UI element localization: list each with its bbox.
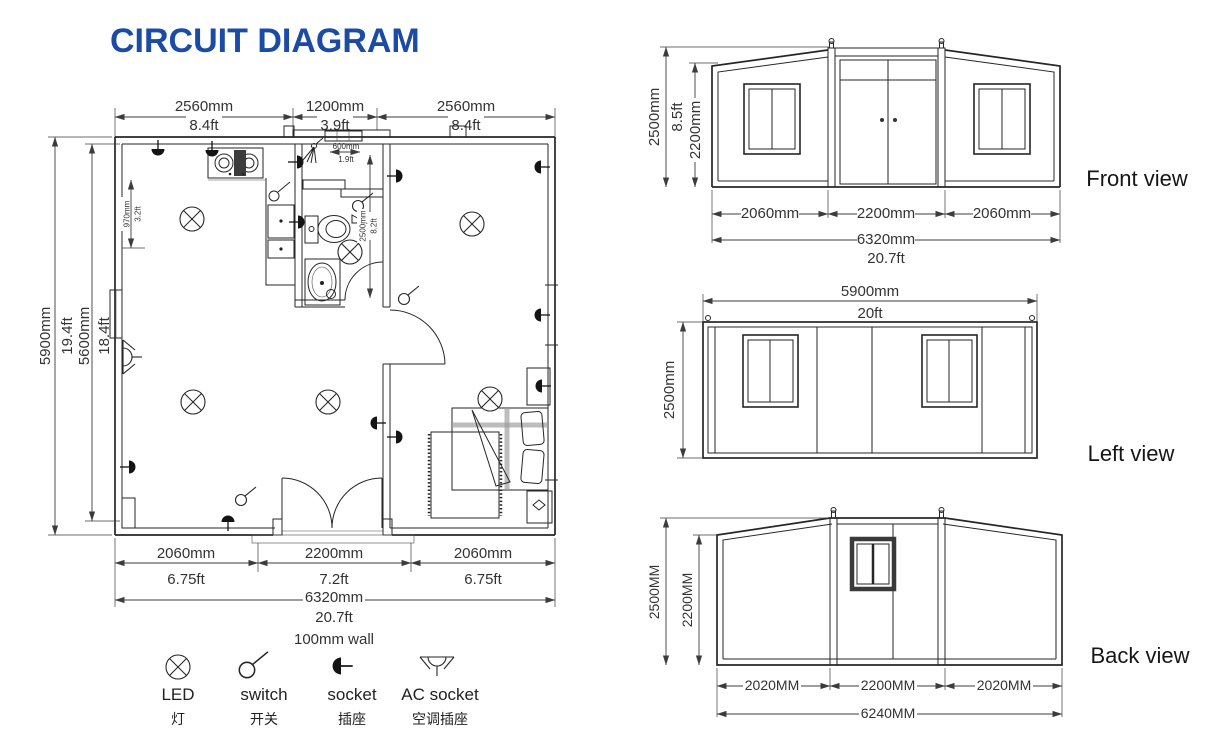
switch-icon: [399, 286, 420, 305]
dim-bath-height-mm: 2500mm: [359, 210, 368, 241]
dim-bottom-1-ft: 6.75ft: [167, 571, 205, 588]
lifting-lug-icon: [831, 508, 944, 519]
dim-left-inner-ft: 18.4ft: [96, 316, 113, 354]
dim-bath-width-mm: 600mm: [333, 142, 360, 151]
dim-bath-width-ft: 1.9ft: [338, 155, 354, 164]
back-view: 2500MM 2200MM 2020MM 2200MM 2020MM 6240M…: [646, 508, 1190, 722]
left-view-label: Left view: [1088, 441, 1175, 466]
toilet-icon: [305, 216, 350, 244]
front-door: [840, 60, 936, 184]
left-dim-2500: 2500mm: [661, 361, 678, 419]
socket-icon: [387, 431, 403, 444]
bedroom-door: [390, 310, 445, 364]
left-window-2: [922, 335, 977, 407]
page: CIRCUIT DIAGRAM: [0, 0, 1214, 745]
ac-socket-icon: [123, 340, 142, 374]
socket-icon: [289, 216, 305, 229]
led-icon: [316, 390, 340, 414]
switch-icon: [236, 487, 257, 506]
diagram-canvas: 2560mm 8.4ft 1200mm 3.9ft 2560mm 8.4ft 5…: [0, 0, 1214, 745]
legend-switch-icon: [239, 652, 268, 678]
front-dim-2500: 2500mm: [646, 88, 663, 146]
left-view-dimensions: 5900mm 20ft 2500mm: [661, 283, 1037, 458]
socket-icon: [152, 140, 165, 156]
back-view-label: Back view: [1090, 643, 1189, 668]
left-dim-5900: 5900mm: [841, 283, 899, 300]
dim-total-mm: 6320mm: [305, 589, 363, 606]
dim-bottom-3-mm: 2060mm: [454, 545, 512, 562]
wall-note: 100mm wall: [294, 631, 374, 648]
washbasin-icon: [305, 259, 340, 305]
socket-icon: [371, 417, 387, 430]
legend-socket-zh: 插座: [338, 711, 366, 727]
legend-led-zh: 灯: [171, 711, 185, 727]
back-dim-b2: 2200MM: [861, 677, 915, 693]
front-window-left: [744, 84, 800, 154]
led-icon: [460, 212, 484, 236]
back-dim-total: 6240MM: [861, 705, 915, 721]
front-dim-b3: 2060mm: [973, 205, 1031, 222]
legend-socket-icon: [333, 658, 353, 675]
led-icon: [338, 240, 362, 264]
legend-ac-socket-label: AC socket: [401, 685, 479, 704]
dim-top-1-ft: 8.4ft: [189, 117, 219, 134]
plan-electrical: [120, 140, 551, 531]
socket-icon: [222, 516, 235, 532]
legend-socket-label: socket: [327, 685, 376, 704]
dim-bath-height-ft: 8.2ft: [370, 217, 379, 233]
legend-switch-zh: 开关: [250, 711, 278, 727]
floor-plan: 2560mm 8.4ft 1200mm 3.9ft 2560mm 8.4ft 5…: [37, 98, 558, 727]
dim-top-3-ft: 8.4ft: [451, 117, 481, 134]
shower-icon: [303, 138, 323, 163]
socket-icon: [206, 141, 219, 157]
front-dim-total-ft: 20.7ft: [867, 250, 905, 267]
bathroom-door: [345, 262, 383, 300]
legend-led-icon: [166, 655, 190, 679]
legend-led-label: LED: [161, 685, 194, 704]
front-window-right: [974, 84, 1030, 154]
back-dim-2200: 2200MM: [679, 573, 695, 627]
front-dim-85ft: 8.5ft: [669, 102, 686, 132]
kitchen-counter: [208, 178, 295, 285]
back-window: [852, 539, 894, 589]
socket-icon: [288, 156, 304, 169]
legend-ac-socket-zh: 空调插座: [412, 711, 468, 727]
dim-left-outer-ft: 19.4ft: [59, 316, 76, 354]
front-view-label: Front view: [1086, 166, 1188, 191]
legend-switch-label: switch: [240, 685, 287, 704]
front-view: 2500mm 8.5ft 2200mm 2060mm 2200mm 2060mm…: [646, 39, 1188, 268]
dim-kitchen-ft: 3.2ft: [134, 205, 143, 221]
socket-icon: [536, 380, 552, 393]
front-dim-total-mm: 6320mm: [857, 231, 915, 248]
led-icon: [181, 390, 205, 414]
entry-double-door: [282, 478, 382, 528]
dim-top-3-mm: 2560mm: [437, 98, 495, 115]
led-icon: [180, 207, 204, 231]
back-dim-b3: 2020MM: [977, 677, 1031, 693]
dim-bottom-3-ft: 6.75ft: [464, 571, 502, 588]
led-icon: [478, 387, 502, 411]
dim-bottom-2-mm: 2200mm: [305, 545, 363, 562]
dim-total-ft: 20.7ft: [315, 609, 353, 626]
left-view: 5900mm 20ft 2500mm Left view: [661, 283, 1175, 466]
dim-left-outer-mm: 5900mm: [37, 307, 54, 365]
dim-top-2-ft: 3.9ft: [320, 117, 350, 134]
left-window-1: [743, 335, 798, 407]
front-dim-2200: 2200mm: [687, 101, 704, 159]
left-dim-20ft: 20ft: [857, 305, 883, 322]
dim-top-1-mm: 2560mm: [175, 98, 233, 115]
front-dim-b2: 2200mm: [857, 205, 915, 222]
back-dim-b1: 2020MM: [745, 677, 799, 693]
lifting-lug-icon: [829, 39, 944, 49]
dim-bottom-1-mm: 2060mm: [157, 545, 215, 562]
dim-left-inner-mm: 5600mm: [76, 307, 93, 365]
legend: LED 灯 switch 开关 socket 插座 AC socket 空调插座: [161, 652, 479, 727]
socket-icon: [387, 170, 403, 183]
dim-kitchen-mm: 970mm: [123, 200, 132, 227]
legend-ac-socket-icon: [420, 657, 454, 676]
front-dim-b1: 2060mm: [741, 205, 799, 222]
dim-top-2-mm: 1200mm: [306, 98, 364, 115]
dim-bottom-2-ft: 7.2ft: [319, 571, 349, 588]
back-dim-2500: 2500MM: [646, 565, 662, 619]
kitchen-sink: [268, 182, 294, 258]
